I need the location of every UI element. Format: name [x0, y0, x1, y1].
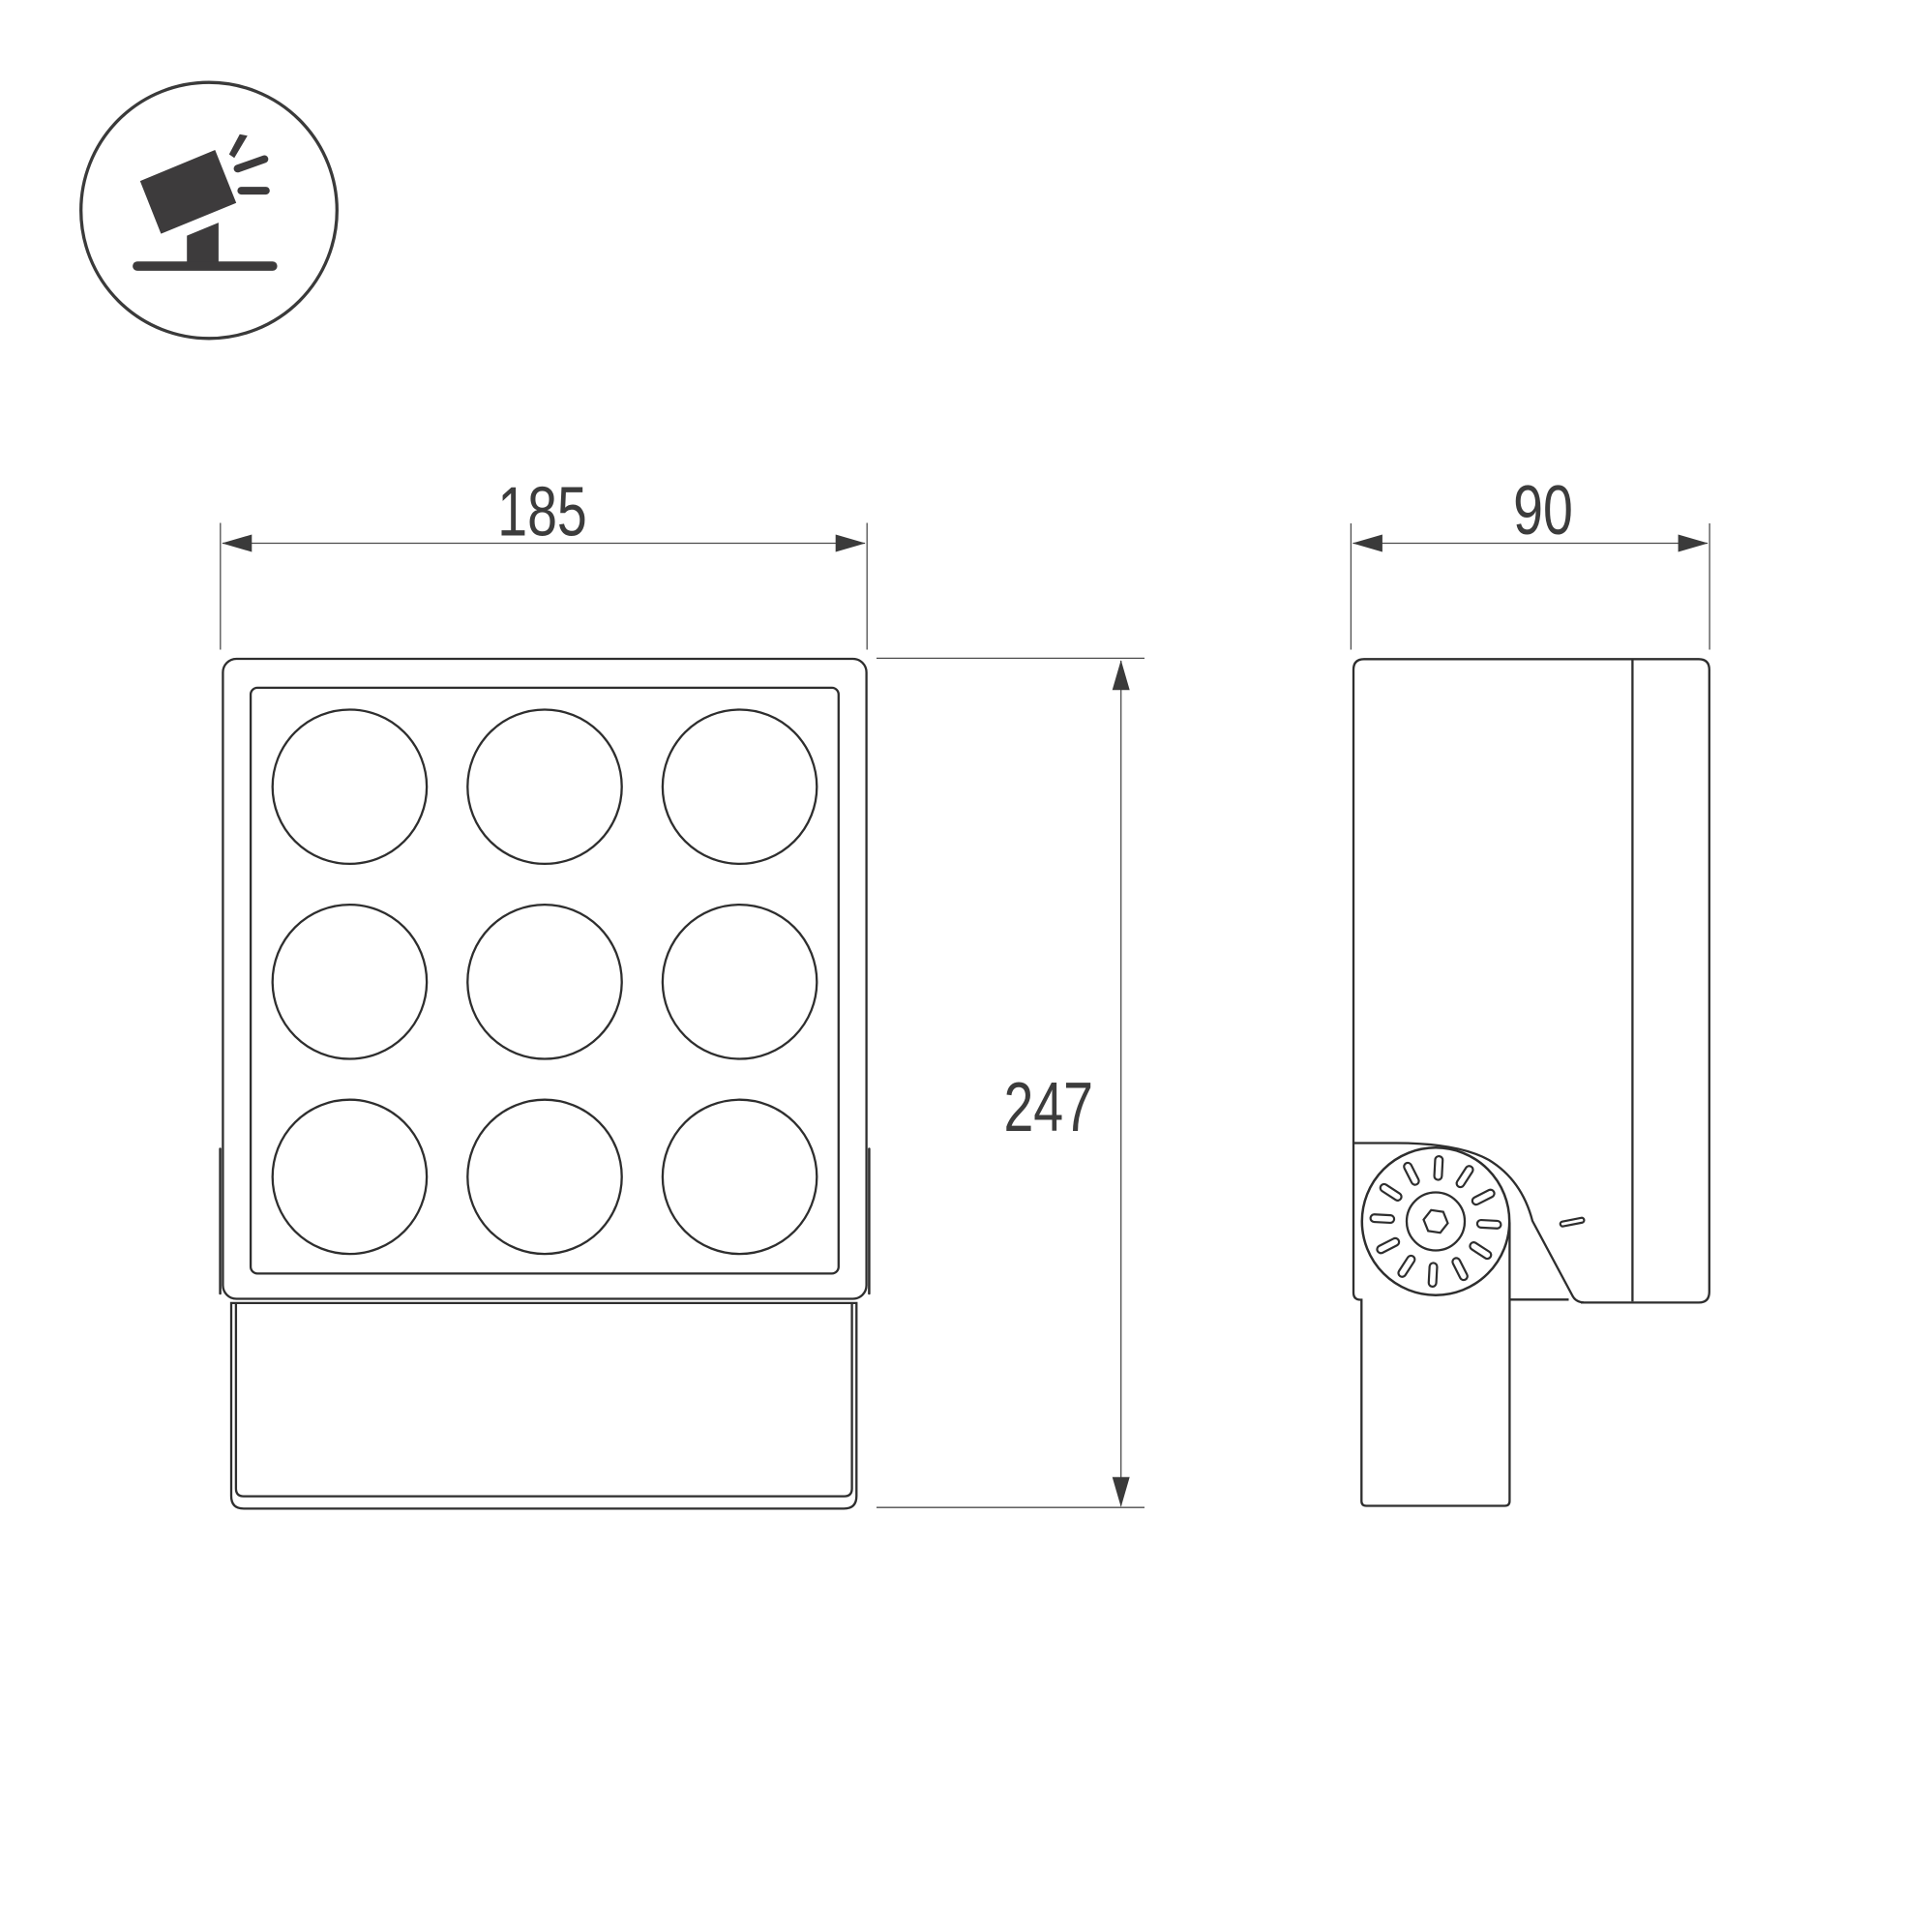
svg-text:90: 90: [1513, 471, 1573, 550]
svg-text:247: 247: [1003, 1068, 1093, 1146]
svg-text:185: 185: [497, 472, 587, 550]
